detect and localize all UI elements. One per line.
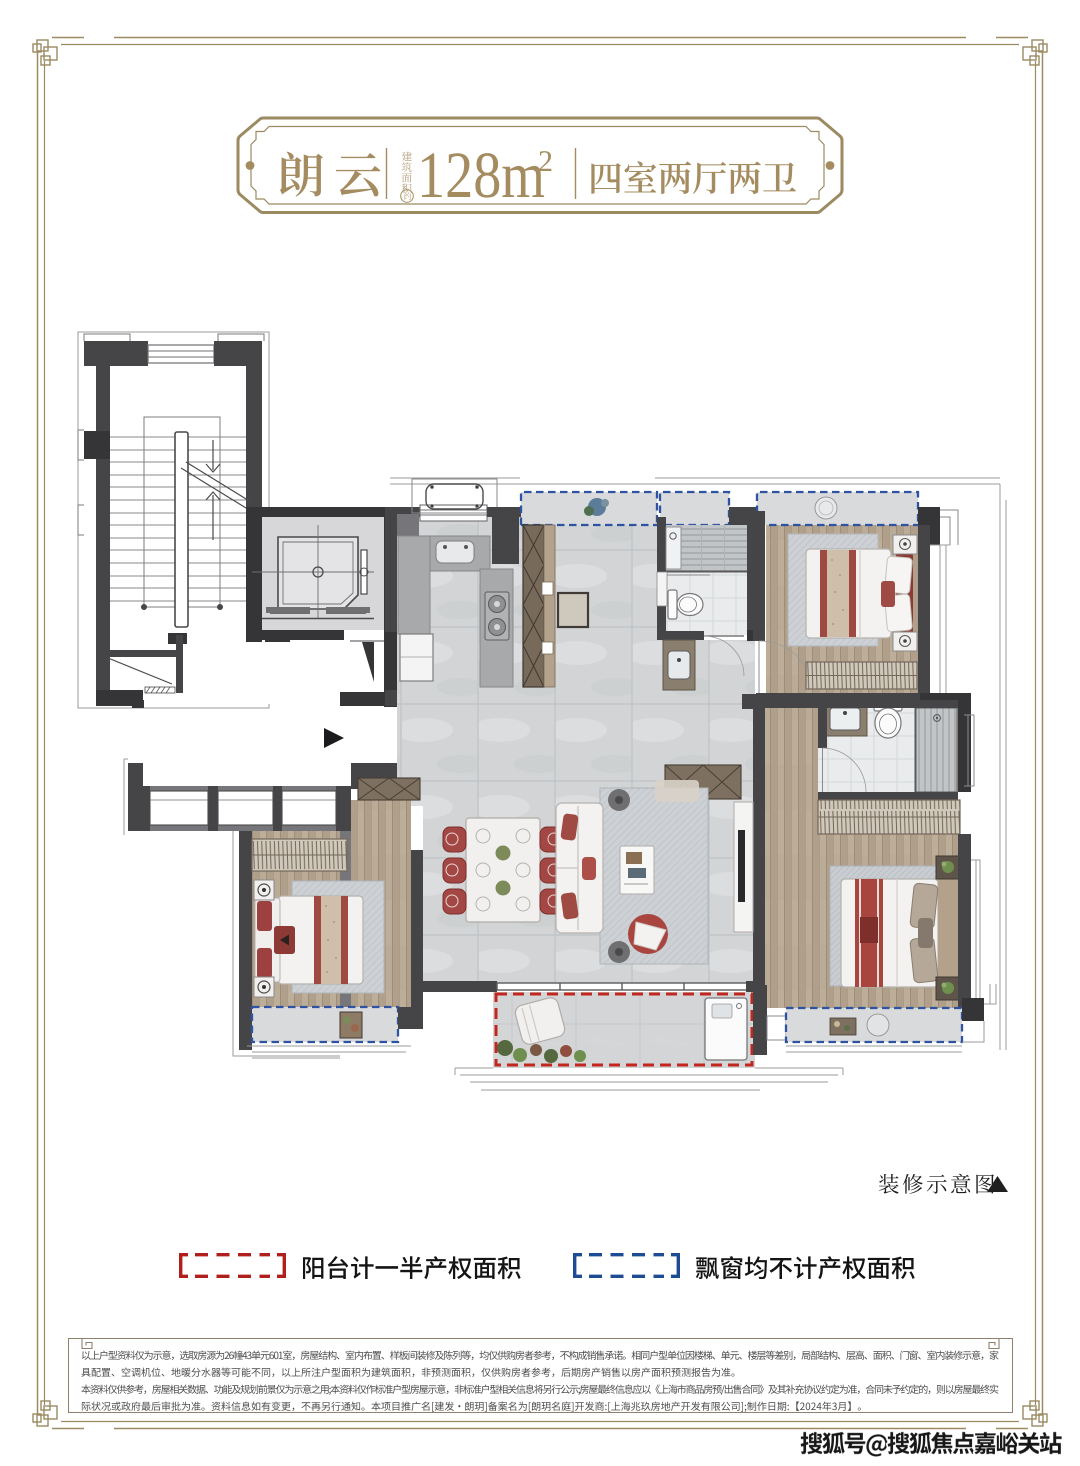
svg-text:2: 2: [538, 145, 553, 178]
svg-text:128m: 128m: [417, 139, 545, 212]
